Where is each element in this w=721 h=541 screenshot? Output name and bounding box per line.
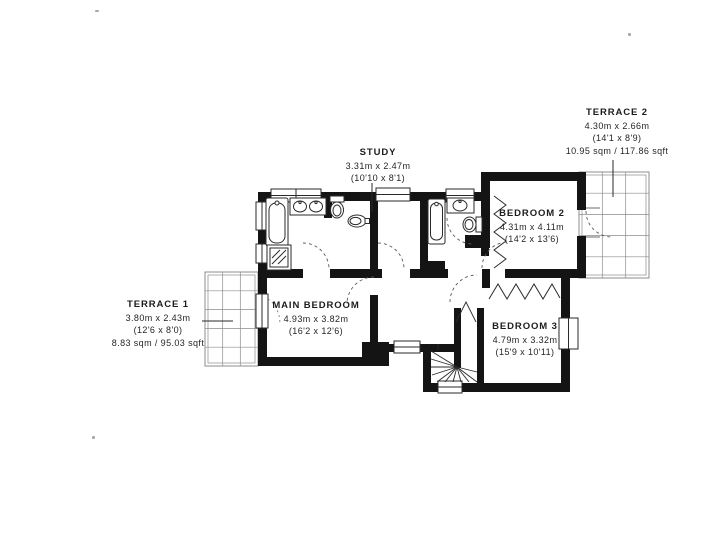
window-icon — [376, 188, 410, 201]
double-sink-icon — [290, 198, 326, 215]
bathtub-icon — [428, 199, 445, 244]
room-dims-imperial: (14'1 x 8'9) — [542, 132, 692, 145]
room-dims-imperial: (14'2 x 13'6) — [457, 233, 607, 246]
floorplan-drawing — [0, 0, 721, 541]
door-arc — [450, 275, 477, 302]
room-name: BEDROOM 2 — [457, 208, 607, 221]
window-icon — [256, 244, 268, 263]
room-label-bedroom2: BEDROOM 2 4.31m x 4.11m (14'2 x 13'6) — [457, 208, 607, 246]
bathtub-icon — [266, 198, 288, 246]
room-dims-imperial: (15'9 x 10'11) — [450, 346, 600, 359]
window-icon — [438, 381, 462, 393]
room-label-terrace1: TERRACE 1 3.80m x 2.43m (12'6 x 8'0) 8.8… — [83, 299, 233, 349]
room-area: 10.95 sqm / 117.86 sqft — [542, 145, 692, 158]
door-arc — [303, 243, 329, 269]
room-area: 8.83 sqm / 95.03 sqft — [83, 337, 233, 350]
room-label-bedroom3: BEDROOM 3 4.79m x 3.32m (15'9 x 10'11) — [450, 321, 600, 359]
window-icon — [394, 341, 420, 353]
room-name: STUDY — [303, 147, 453, 160]
floorplan-canvas: TERRACE 2 4.30m x 2.66m (14'1 x 8'9) 10.… — [0, 0, 721, 541]
scan-artifact — [92, 436, 95, 439]
wardrobe-icon — [489, 284, 560, 299]
room-dims-imperial: (16'2 x 12'6) — [241, 325, 391, 338]
room-dims-metric: 4.31m x 4.11m — [457, 221, 607, 234]
room-name: TERRACE 1 — [83, 299, 233, 312]
toilet-icon — [330, 196, 344, 218]
room-name: MAIN BEDROOM — [241, 300, 391, 313]
room-name: TERRACE 2 — [542, 107, 692, 120]
room-name: BEDROOM 3 — [450, 321, 600, 334]
bidet-icon — [348, 215, 370, 227]
scan-artifact — [95, 10, 99, 12]
room-label-main-bedroom: MAIN BEDROOM 4.93m x 3.82m (16'2 x 12'6) — [241, 300, 391, 338]
scan-artifact — [628, 33, 631, 36]
room-dims-metric: 4.79m x 3.32m — [450, 334, 600, 347]
door-arc — [378, 243, 404, 269]
room-label-study: STUDY 3.31m x 2.47m (10'10 x 8'1) — [303, 147, 453, 185]
room-label-terrace2: TERRACE 2 4.30m x 2.66m (14'1 x 8'9) 10.… — [542, 107, 692, 157]
bathroom1-fixtures — [266, 196, 370, 270]
room-dims-metric: 4.30m x 2.66m — [542, 120, 692, 133]
room-dims-imperial: (12'6 x 8'0) — [83, 324, 233, 337]
room-dims-metric: 3.31m x 2.47m — [303, 160, 453, 173]
room-dims-metric: 4.93m x 3.82m — [241, 313, 391, 326]
room-dims-imperial: (10'10 x 8'1) — [303, 172, 453, 185]
room-dims-metric: 3.80m x 2.43m — [83, 312, 233, 325]
shower-icon — [267, 245, 291, 270]
